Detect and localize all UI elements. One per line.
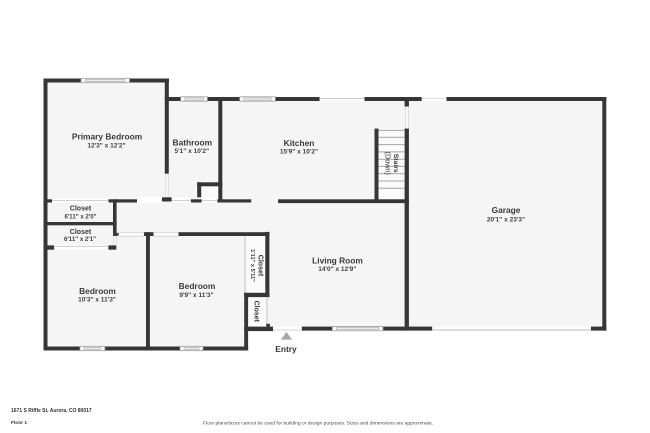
svg-text:Closet: Closet	[252, 301, 259, 323]
svg-text:10'3" x 11'3": 10'3" x 11'3"	[78, 296, 116, 303]
svg-text:Living Room: Living Room	[312, 255, 363, 265]
svg-text:Bedroom: Bedroom	[179, 281, 216, 291]
svg-text:12'3" x 12'2": 12'3" x 12'2"	[87, 143, 125, 150]
svg-text:Garage: Garage	[492, 205, 521, 215]
svg-text:Entry: Entry	[275, 344, 297, 354]
svg-text:(Down): (Down)	[384, 152, 393, 175]
svg-text:14'0" x 12'9": 14'0" x 12'9"	[318, 266, 356, 273]
svg-text:Closet: Closet	[257, 255, 264, 277]
svg-text:Kitchen: Kitchen	[284, 138, 315, 148]
svg-text:Bathroom: Bathroom	[173, 138, 213, 148]
svg-text:1'11" x 5'11": 1'11" x 5'11"	[249, 249, 255, 282]
svg-text:6'11" x 2'0": 6'11" x 2'0"	[64, 213, 96, 220]
svg-text:Floor plans/sizes cannot be us: Floor plans/sizes cannot be used for bui…	[203, 421, 433, 427]
svg-text:Floor 1: Floor 1	[11, 420, 27, 426]
svg-text:1671 S Riffle St, Aurora, CO 8: 1671 S Riffle St, Aurora, CO 80017	[11, 408, 92, 414]
svg-text:15'9" x 10'2": 15'9" x 10'2"	[280, 149, 318, 156]
svg-text:Closet: Closet	[70, 229, 92, 236]
svg-text:6'11" x 2'1": 6'11" x 2'1"	[64, 236, 96, 243]
svg-text:Primary Bedroom: Primary Bedroom	[72, 131, 142, 141]
svg-text:20'1" x 23'3": 20'1" x 23'3"	[487, 216, 525, 223]
svg-text:9'9" x 11'3": 9'9" x 11'3"	[179, 292, 213, 299]
svg-text:5'1" x 10'2": 5'1" x 10'2"	[175, 148, 210, 155]
svg-text:Closet: Closet	[70, 206, 92, 213]
svg-text:Bedroom: Bedroom	[79, 286, 116, 296]
